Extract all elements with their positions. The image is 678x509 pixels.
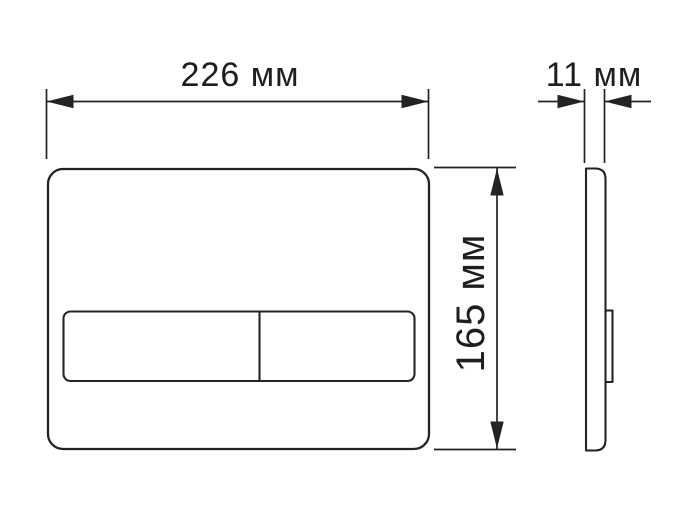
height-dimension: 165 мм (434, 168, 516, 450)
height-dimension-label: 165 мм (449, 234, 493, 373)
flush-plate-dimension-drawing: 226 мм 11 мм 165 мм (0, 0, 678, 509)
arrowhead-left-icon (47, 95, 74, 108)
arrowhead-up-icon (490, 169, 503, 196)
plate-front-outline (48, 169, 429, 449)
arrowhead-pointing-right-icon (558, 95, 585, 108)
width-dimension: 226 мм (47, 56, 429, 159)
arrowhead-pointing-left-icon (605, 95, 632, 108)
plate-front-view (48, 169, 429, 449)
plate-side-view (586, 169, 613, 451)
arrowhead-right-icon (402, 95, 429, 108)
depth-dimension-label: 11 мм (546, 56, 643, 94)
depth-dimension: 11 мм (538, 56, 651, 163)
flush-buttons-outline (64, 312, 415, 382)
plate-side-outline (586, 169, 606, 451)
arrowhead-down-icon (490, 422, 503, 449)
width-dimension-label: 226 мм (181, 56, 300, 94)
dimension-drawing-canvas: 226 мм 11 мм 165 мм (0, 0, 678, 509)
